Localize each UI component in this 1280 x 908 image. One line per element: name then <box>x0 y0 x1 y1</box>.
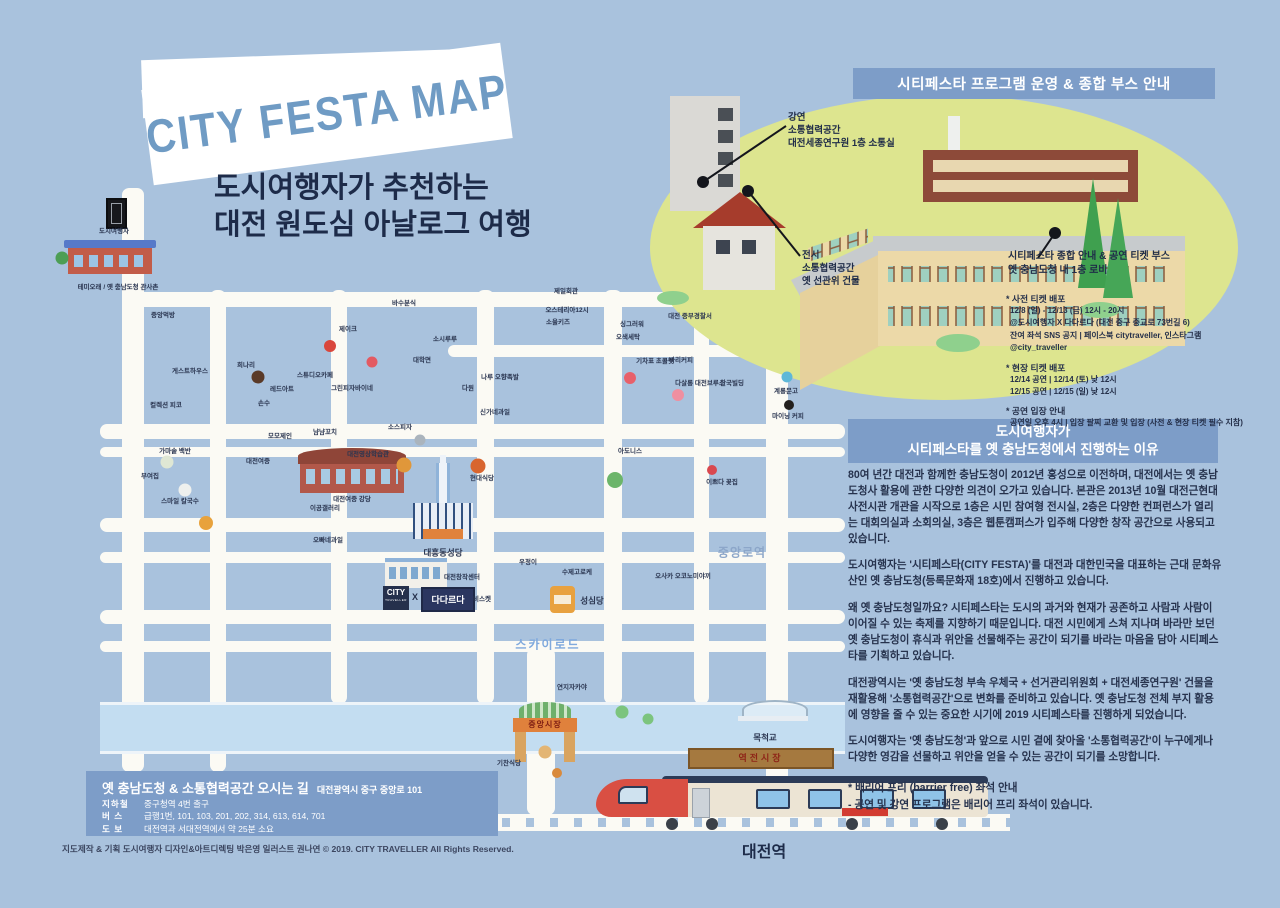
ticket-heading: * 공연 입장 안내 <box>1006 404 1258 417</box>
map-poi-label: 다살롱 대전브루스 <box>675 380 725 388</box>
squid-icon <box>672 389 684 401</box>
ticket-lines: 공연일 오후 4시 | 입장 팔찌 교환 및 입장 (사전 & 현장 티켓 필수… <box>1010 417 1258 429</box>
bridge-label: 목척교 <box>753 732 776 743</box>
ticket-heading: * 사전 티켓 배포 <box>1006 292 1258 305</box>
map-poi-label: 가마솥 백반 <box>159 448 191 456</box>
map-poi-label: 희나리 <box>237 362 255 370</box>
directions-row: 도 보대전역과 서대전역에서 약 25분 소요 <box>102 823 325 835</box>
ticket-heading: * 현장 티켓 배포 <box>1006 361 1258 374</box>
map-poi-label: 소울키즈 <box>546 319 570 327</box>
reason-paragraph: 도시여행자는 '옛 충남도청'과 앞으로 시민 곁에 찾아올 '소통협력공간'이… <box>848 734 1222 766</box>
map-poi-label: 대전여중 강당 <box>333 496 371 504</box>
map-poi-label: 싱그러워 <box>620 321 644 329</box>
noodle-bowl-icon <box>179 484 192 497</box>
creation-center-building <box>385 558 447 588</box>
cathedral-building <box>413 463 473 547</box>
paella-pan-icon <box>471 459 486 474</box>
map-poi-label: 게스트하우스 <box>172 368 208 376</box>
temi-orae-roof <box>64 240 156 248</box>
map-poi-label: 대흥동성당 <box>423 547 462 558</box>
pizza-slice-icon <box>199 516 213 530</box>
bush-icon <box>643 714 654 725</box>
auditorium-building <box>300 461 404 493</box>
map-poi-label: 계룡문고 <box>774 388 798 396</box>
map-poi-label: 도시여행자 <box>99 228 129 236</box>
map-poi-label: 제이크 <box>339 326 357 334</box>
reason-paragraph: 대전광역시는 '옛 충남도청 부속 우체국 + 선거관리위원회 + 대전세종연구… <box>848 676 1222 724</box>
callout-info-booth: 시티페스타 종합 안내 & 공연 티켓 부스 옛 충남도청 내 1층 로비 <box>1008 250 1170 277</box>
windows <box>74 255 146 267</box>
bird-icon <box>782 372 793 383</box>
river-daejeoncheon <box>100 702 845 754</box>
central-market-gate: 중앙시장 <box>513 712 577 762</box>
wooden-market-sign: 역전시장 <box>688 748 834 769</box>
map-poi-label: 오색세탁 <box>616 334 640 342</box>
bush-icon <box>616 706 629 719</box>
map-poi-label: 대전 중부경찰서 <box>668 313 712 321</box>
strawberry-icon <box>367 357 378 368</box>
map-poi-label: 냠냠꼬치 <box>313 429 337 437</box>
ticket-info: * 사전 티켓 배포 12/8 (일) - 12/13 (금) 12시 - 20… <box>1006 286 1258 430</box>
map-poi-label: 컬렉션 피코 <box>150 402 182 410</box>
map-poi-label: 수제고로케 <box>562 569 592 577</box>
map-poi-label: 다원 <box>462 385 474 393</box>
ticket-group: * 공연 입장 안내 공연일 오후 4시 | 입장 팔찌 교환 및 입장 (사전… <box>1006 404 1258 429</box>
map-poi-label: 성심당 <box>580 595 603 606</box>
cocktail-icon <box>624 372 636 384</box>
map-poi-label: 현대식당 <box>470 475 494 483</box>
chocolate-cake-icon <box>252 371 265 384</box>
map-poi-label: 손수 <box>258 400 270 408</box>
coffee-cup-icon <box>784 400 794 410</box>
gate-dome <box>519 702 571 718</box>
ticket-group: * 사전 티켓 배포 12/8 (일) - 12/13 (금) 12시 - 20… <box>1006 292 1258 355</box>
dadareuda-logo: 다다르다 <box>421 587 475 612</box>
reason-paragraph: 도시여행자는 '시티페스타(CITY FESTA)'를 대전과 대한민국을 대표… <box>848 558 1222 590</box>
fish-icon <box>415 435 426 446</box>
map-poi-label: 모모제인 <box>268 433 292 441</box>
map-poi-label: 제일회관 <box>554 288 578 296</box>
directions-title: 옛 충남도청 & 소통협력공간 오시는 길대전광역시 중구 중앙로 101 <box>102 778 422 797</box>
street-name-label: 중앙로역 <box>718 544 766 561</box>
address: 대전광역시 중구 중앙로 101 <box>317 785 422 795</box>
corndog-icon <box>552 768 562 778</box>
directions-box: 옛 충남도청 & 소통협력공간 오시는 길대전광역시 중구 중앙로 101 지하… <box>86 771 498 836</box>
map-poi-label: 한국빌딩 <box>720 380 744 388</box>
street-name-label: 스카이로드 <box>515 636 580 653</box>
mokcheok-bridge <box>742 700 804 726</box>
program-panel-header: 시티페스타 프로그램 운영 & 종합 부스 안내 <box>853 68 1215 99</box>
map-poi-label: 연지자카야 <box>557 684 587 692</box>
map-poi-label: 비스켓 <box>473 596 491 604</box>
flower-icon <box>707 465 717 475</box>
map-poi-label: 테미오래 / 옛 충남도청 관사촌 <box>78 284 159 292</box>
ticket-lines: 12/14 공연 | 12/14 (토) 낮 12시 12/15 공연 | 12… <box>1010 374 1258 399</box>
map-poi-label: 바수분식 <box>392 300 416 308</box>
map-poi-label: 대전여중 <box>246 458 270 466</box>
map-poi-label: 대학면 <box>413 357 431 365</box>
map-poi-label: 나루 오향족발 <box>481 374 519 382</box>
pizza-icon <box>397 458 412 473</box>
barrier-free-note: * 배리어 프리 (barrier free) 좌석 안내 - 공연 및 강연 … <box>848 780 1222 814</box>
road-horizontal <box>100 610 845 624</box>
city-festa-map-poster: CITY FESTA MAP 도시여행자가 추천하는 대전 원도심 아날로그 여… <box>0 0 1280 908</box>
map-poi-label: 스마일 칼국수 <box>161 498 199 506</box>
map-poi-label: 이공갤러리 <box>310 505 340 513</box>
map-poi-label: 오사카 오코노미야끼 <box>655 573 711 581</box>
reason-panel-body: 80여 년간 대전과 함께한 충남도청이 2012년 홍성으로 이전하며, 대전… <box>848 468 1222 814</box>
gate-sign: 중앙시장 <box>513 718 577 732</box>
soup-bowl-icon <box>161 456 174 469</box>
train-cab-window <box>618 786 648 804</box>
ticket-group: * 현장 티켓 배포 12/14 공연 | 12/14 (토) 낮 12시 12… <box>1006 361 1258 399</box>
rear-brick-block <box>923 150 1138 202</box>
directions-rows: 지하철중구청역 4번 출구 버 스급행1번, 101, 103, 201, 20… <box>102 798 325 835</box>
map-poi-label: 부여집 <box>141 473 159 481</box>
reason-paragraph: 왜 옛 충남도청일까요? 시티페스타는 도시의 과거와 현재가 공존하고 사람과… <box>848 601 1222 665</box>
collab-x-mark: X <box>412 592 418 602</box>
map-poi-label: 기찬식당 <box>497 760 521 768</box>
daejeon-station-label: 대전역 <box>742 838 786 862</box>
city-traveller-logo: CITY TRAVELLER <box>383 586 409 610</box>
road-horizontal <box>100 641 845 652</box>
map-poi-label: 아도니스 <box>618 448 642 456</box>
map-poi-label: 우정이 <box>519 559 537 567</box>
tree-icon <box>56 252 69 265</box>
directions-row: 버 스급행1번, 101, 103, 201, 202, 314, 613, 6… <box>102 810 325 822</box>
map-poi-label: 신가네과일 <box>480 409 510 417</box>
map-poi-label: 대전영상학습관 <box>347 451 389 459</box>
map-poi-label: 오스테리아12시 <box>545 307 588 315</box>
map-poi-label: 소스피자 <box>388 424 412 432</box>
road-horizontal <box>100 447 845 457</box>
road-horizontal <box>100 424 845 439</box>
poster-subtitle: 도시여행자가 추천하는 대전 원도심 아날로그 여행 <box>214 170 532 244</box>
ticket-lines: 12/8 (일) - 12/13 (금) 12시 - 20시 @도시여행자 X … <box>1010 305 1258 355</box>
callout-exhibition: 전시 소통협력공간 옛 선관위 건물 <box>802 250 860 288</box>
map-poi-label: 오빠네과일 <box>313 537 343 545</box>
directions-row: 지하철중구청역 4번 출구 <box>102 798 325 810</box>
reason-paragraph: 80여 년간 대전과 함께한 충남도청이 2012년 홍성으로 이전하며, 대전… <box>848 468 1222 547</box>
map-poi-label: 레드아트 <box>270 386 294 394</box>
map-poi-label: 그린피자바이네 <box>331 385 373 393</box>
tree-icon <box>607 472 623 488</box>
bookstore-sign <box>106 198 127 229</box>
bakery-bag-icon <box>550 586 575 613</box>
map-poi-label: 이쁘다 꽃집 <box>706 479 738 487</box>
soda-cup-icon <box>324 340 336 352</box>
map-poi-label: 마이닝 커피 <box>772 413 804 421</box>
callout-lecture: 강연 소통협력공간 대전세종연구원 1층 소통실 <box>788 112 895 150</box>
map-poi-label: 바리커피 <box>669 357 693 365</box>
map-poi-label: 중앙먹방 <box>151 312 175 320</box>
map-poi-label: 스튜디오카페 <box>297 372 333 380</box>
temi-orae-house <box>68 248 152 274</box>
credits-line: 지도제작 & 기획 도시여행자 디자인&아트디렉팅 박은영 일러스트 권나연 ©… <box>62 843 514 855</box>
map-poi-label: 대전창작센터 <box>444 574 480 582</box>
map-poi-label: 소시루루 <box>433 336 457 344</box>
